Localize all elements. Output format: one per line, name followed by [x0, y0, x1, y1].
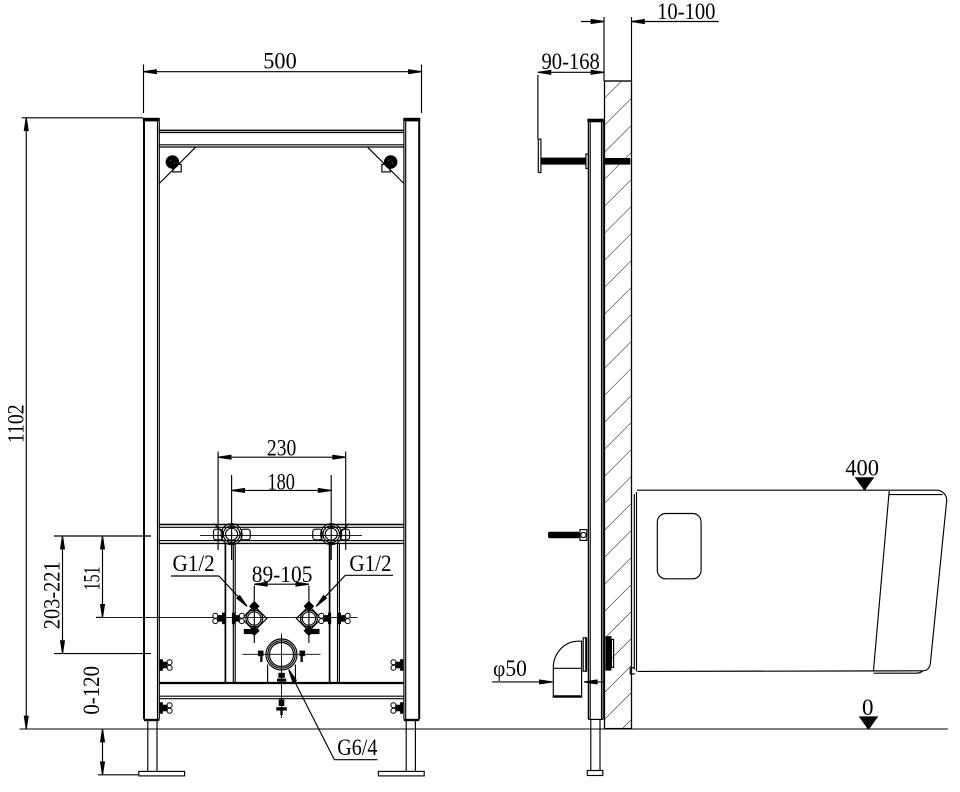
svg-text:G1/2: G1/2 [349, 551, 391, 576]
svg-text:10-100: 10-100 [657, 0, 715, 24]
svg-text:φ50: φ50 [493, 656, 527, 681]
svg-text:1102: 1102 [3, 404, 28, 443]
svg-text:0-120: 0-120 [79, 666, 104, 715]
svg-text:400: 400 [845, 455, 879, 480]
svg-text:G6/4: G6/4 [337, 735, 378, 760]
svg-text:203-221: 203-221 [39, 561, 64, 629]
svg-text:89-105: 89-105 [252, 562, 313, 587]
svg-text:500: 500 [263, 48, 296, 73]
svg-text:180: 180 [267, 470, 295, 495]
svg-text:230: 230 [267, 435, 296, 460]
svg-text:151: 151 [80, 566, 105, 590]
svg-text:G1/2: G1/2 [173, 551, 215, 576]
svg-text:0: 0 [862, 695, 874, 720]
svg-text:90-168: 90-168 [542, 49, 600, 74]
